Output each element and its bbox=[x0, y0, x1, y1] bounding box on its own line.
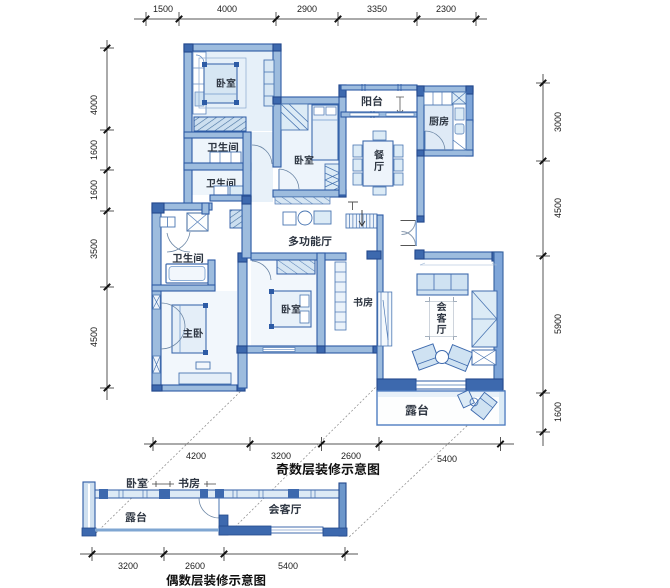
svg-text:5900: 5900 bbox=[553, 314, 563, 334]
svg-text:3500: 3500 bbox=[89, 239, 99, 259]
svg-text:4200: 4200 bbox=[186, 451, 206, 461]
svg-text:5400: 5400 bbox=[437, 454, 457, 464]
svg-text:2300: 2300 bbox=[436, 4, 456, 14]
svg-text:2600: 2600 bbox=[185, 561, 205, 571]
svg-text:1500: 1500 bbox=[153, 4, 173, 14]
svg-text:1600: 1600 bbox=[89, 140, 99, 160]
svg-text:1600: 1600 bbox=[553, 402, 563, 422]
svg-text:4500: 4500 bbox=[553, 198, 563, 218]
svg-text:4000: 4000 bbox=[217, 4, 237, 14]
svg-text:3350: 3350 bbox=[367, 4, 387, 14]
svg-text:2900: 2900 bbox=[297, 4, 317, 14]
svg-text:2600: 2600 bbox=[341, 451, 361, 461]
svg-text:4500: 4500 bbox=[89, 327, 99, 347]
svg-text:4000: 4000 bbox=[89, 95, 99, 115]
svg-text:3200: 3200 bbox=[118, 561, 138, 571]
svg-text:3000: 3000 bbox=[553, 112, 563, 132]
svg-text:1600: 1600 bbox=[89, 180, 99, 200]
svg-text:5400: 5400 bbox=[278, 561, 298, 571]
svg-text:3200: 3200 bbox=[271, 451, 291, 461]
